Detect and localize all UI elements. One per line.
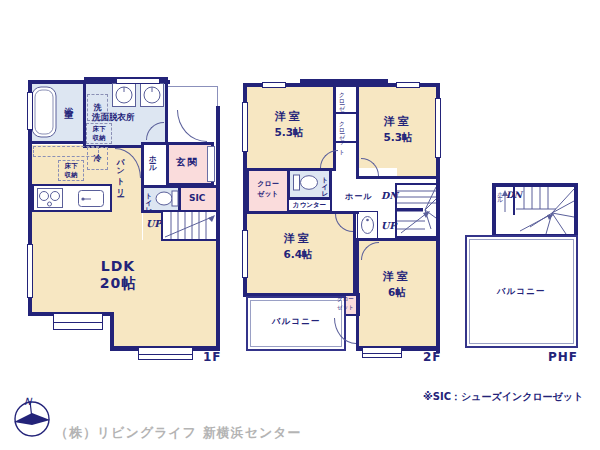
window	[116, 78, 160, 84]
dn-2f-label: DN	[381, 190, 398, 201]
sliding-window	[362, 347, 402, 358]
stairs-1f-treads	[163, 212, 218, 239]
closet-left-2f-text: クローゼット	[257, 180, 280, 200]
wall	[300, 79, 388, 83]
company-name: （株）リビングライフ 新横浜センター	[55, 425, 302, 441]
stairs-phf	[492, 183, 578, 238]
window	[396, 82, 420, 88]
wall	[110, 312, 114, 350]
dn-phf-label: DN	[506, 190, 522, 201]
floor-2f-tag: 2F	[423, 350, 442, 364]
bathtub-icon	[31, 86, 57, 138]
closet-small-2f-label: クローゼット	[333, 296, 358, 311]
underfloor-storage-1-label: 床下収納	[92, 125, 106, 143]
ldk-size: 20帖	[78, 275, 158, 292]
balcony-2f-label: バルコニー	[252, 316, 340, 326]
balcony-phf-label: バルコニー	[477, 286, 565, 296]
hall-phf-label: ホール	[497, 188, 504, 201]
stairs-2f	[395, 183, 438, 238]
wall	[356, 238, 440, 241]
bath-label: 浴室	[63, 100, 74, 104]
floor-1f-tag: 1F	[203, 350, 222, 364]
sic-note: ※SIC：シューズインクローゼット	[423, 391, 583, 403]
counter-2f-label: カウンター	[293, 202, 326, 210]
stairs-1f	[161, 210, 220, 241]
bedroom2-size: 5.3帖	[368, 131, 428, 144]
up-2f-label: UP	[381, 220, 396, 231]
sliding-window	[53, 313, 103, 330]
underfloor-storage-1: 床下収納	[86, 123, 112, 144]
bedroom3-name: 洋室	[268, 232, 328, 245]
stove-icon	[37, 188, 63, 208]
underfloor-storage-2-label: 床下収納	[64, 162, 78, 180]
closet-left-2f-label: クローゼット	[253, 180, 283, 200]
toilet-2f-label: トイレ	[320, 172, 328, 194]
window	[27, 244, 33, 298]
bedroom2-label: 洋室 5.3帖	[368, 115, 428, 144]
bedroom2-name: 洋室	[368, 115, 428, 128]
toilet-1f-icon	[155, 189, 179, 208]
stairs-2f-treads	[397, 185, 436, 236]
bedroom4-size: 6帖	[367, 286, 427, 299]
bedroom3-size: 6.4帖	[268, 248, 328, 261]
window	[27, 92, 33, 130]
stairs-phf-treads	[516, 187, 574, 234]
entrance-label: 玄関	[176, 156, 199, 167]
window	[262, 82, 286, 88]
double-sink-icon	[112, 83, 164, 108]
wall	[356, 238, 359, 350]
wall	[243, 168, 336, 171]
fridge-space: 冷	[87, 147, 108, 170]
wall	[356, 176, 440, 179]
bedroom1-size: 5.3帖	[259, 126, 319, 139]
window	[242, 102, 248, 152]
floor-phf-tag: PHF	[548, 350, 578, 364]
pantry-label: パントリー	[115, 152, 125, 193]
hall-1f-label: ホール	[148, 150, 157, 167]
toilet-1f-label: トイレ	[144, 188, 152, 210]
floorplan-page: 洗 床下収納 冷 床下収納 浴室 洗面脱衣所 パントリー ホール 玄関 トイレ …	[0, 0, 600, 450]
bedroom3-label: 洋室 6.4帖	[268, 232, 328, 261]
compass-icon: N	[10, 393, 54, 439]
bedroom4-label: 洋室 6帖	[367, 270, 427, 299]
wall	[356, 83, 359, 179]
closet-top-a-label: クローゼット	[338, 88, 345, 107]
washroom-label: 洗面脱衣所	[92, 112, 135, 122]
closet-small-2f-text: クローゼット	[337, 296, 355, 311]
closet-top-b-label: クローゼット	[338, 117, 345, 136]
window	[435, 98, 441, 158]
washbasin-icon	[361, 216, 374, 234]
ldk-name-label: LDK 20帖	[78, 258, 158, 292]
fridge-label: 冷	[94, 153, 102, 164]
window	[242, 230, 248, 278]
sliding-window	[138, 347, 193, 360]
toilet-2f-icon	[293, 174, 319, 192]
ldk-area	[111, 240, 217, 347]
ldk-name: LDK	[78, 258, 158, 275]
bedroom4-name: 洋室	[367, 270, 427, 283]
kitchen-sink-icon	[78, 190, 104, 207]
hall-2f-label: ホール	[345, 192, 372, 202]
shoe-cabinet	[207, 146, 215, 182]
bedroom1-name: 洋室	[259, 110, 319, 123]
wall	[216, 106, 220, 351]
underfloor-storage-2: 床下収納	[58, 160, 84, 181]
bedroom1-label: 洋室 5.3帖	[259, 110, 319, 139]
up-1f-label: UP	[146, 218, 161, 229]
sic-label: SIC	[189, 193, 205, 204]
